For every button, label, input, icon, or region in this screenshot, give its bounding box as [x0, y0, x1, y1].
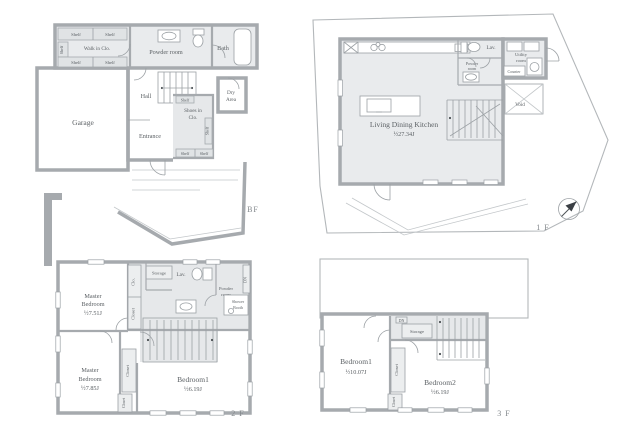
utility-room-label: Utility	[515, 52, 528, 57]
cabinet-icon	[507, 42, 522, 51]
bath-label: Bath	[217, 45, 230, 52]
window	[458, 408, 472, 412]
floor-label-2f: 2 F	[231, 409, 244, 418]
entrance-label: Entrance	[139, 133, 161, 140]
door-arc	[134, 68, 146, 80]
window	[452, 180, 467, 185]
dry-area-label: Area	[226, 97, 237, 103]
toilet-icon	[192, 268, 202, 280]
window	[210, 411, 224, 415]
dn-label: DN	[243, 277, 248, 283]
bedroom2-area: ½6.19J	[431, 389, 449, 396]
bedroom1-area: ½10.07J	[346, 369, 368, 376]
floor-plan-drawing: Garage Shelf Shelf Shelf Shelf Shelf Wal…	[0, 0, 640, 427]
hall-label: Hall	[141, 93, 152, 100]
toilet-icon	[468, 42, 480, 51]
master-bedroom-area: ½7.85J	[81, 385, 99, 392]
floor-label-1f: 1 F	[536, 223, 549, 232]
shelf-box	[58, 57, 127, 67]
stairs-arrow-dot	[439, 353, 441, 355]
shelf-label: Shelf	[200, 151, 209, 156]
toilet-tank-icon	[461, 42, 467, 53]
stairs-arrow-dot	[211, 339, 213, 341]
shoes-closet-label: Shoes in	[184, 108, 202, 114]
door-arc	[546, 48, 559, 61]
floor-1f: Living Dining Kitchen ½27.34J Lav. Powde…	[313, 14, 608, 235]
shelf-label: Shelf	[181, 98, 190, 103]
window	[338, 80, 343, 96]
storage-label: Storage	[410, 329, 424, 334]
stairs-arrow-dot	[439, 321, 441, 323]
shelf-label: Shelf	[105, 60, 115, 65]
walk-in-closet-label: Walk in Clo.	[84, 46, 110, 52]
powder-room-label: Powder room	[149, 49, 183, 56]
bedroom1-area: ½6.19J	[184, 386, 202, 393]
master-bedroom-label: Bedroom	[78, 376, 101, 383]
shelf-label: Shelf	[59, 45, 64, 54]
bathtub-icon	[234, 29, 251, 65]
void-label: Void	[515, 102, 525, 108]
master-bedroom-area: ½7.51J	[84, 310, 102, 317]
ldk-area-label: ½27.34J	[394, 131, 416, 138]
storage-label: Storage	[152, 271, 166, 276]
powder-room-label: Powder	[219, 286, 234, 291]
shelf-label: Shelf	[71, 32, 81, 37]
window	[484, 180, 498, 185]
floor-label-bf: BF	[247, 205, 259, 214]
window	[88, 260, 104, 264]
floor-bf: Garage Shelf Shelf Shelf Shelf Shelf Wal…	[37, 25, 259, 266]
floor-3f: DN Storage Closet Closet Bedroom1 ½10.07…	[320, 259, 528, 418]
monitor-icon	[367, 99, 391, 112]
ground-step-lines	[346, 198, 528, 235]
garage-label: Garage	[72, 118, 94, 127]
window	[423, 180, 438, 185]
bedroom1-label: Bedroom1	[177, 375, 209, 384]
roof-outline	[320, 259, 528, 318]
window	[150, 411, 166, 415]
toilet-tank-icon	[193, 29, 204, 35]
closet-label: Closet	[391, 396, 396, 407]
dn-label: DN	[399, 318, 405, 323]
toilet-icon	[193, 35, 203, 47]
window	[183, 260, 197, 264]
window	[56, 292, 60, 308]
master-bedroom-label: Bedroom	[81, 301, 104, 308]
sink-icon	[176, 300, 196, 313]
window	[56, 383, 60, 397]
stairs-arrow-dot	[147, 339, 149, 341]
terrace-door-arc	[374, 184, 390, 200]
compass-icon	[559, 199, 580, 220]
master-bedroom-label: Master	[81, 367, 98, 374]
dry-area-label: Dry	[227, 90, 235, 96]
window	[180, 411, 196, 415]
shelf-box	[58, 28, 127, 40]
retaining-wall	[44, 198, 52, 266]
entry-door-arc	[150, 160, 165, 175]
shelf-label: Shelf	[71, 60, 81, 65]
window	[320, 330, 324, 346]
floor-plan-canvas: Garage Shelf Shelf Shelf Shelf Shelf Wal…	[0, 0, 640, 427]
bedroom2-label: Bedroom2	[424, 378, 456, 387]
utility-room-label: room	[516, 58, 526, 63]
window	[248, 382, 252, 396]
window	[350, 408, 366, 412]
bf-hall-walls	[128, 68, 173, 160]
window	[56, 336, 60, 352]
floor-label-3f: 3 F	[497, 409, 510, 418]
closet-label: Closet	[125, 364, 130, 376]
closet-label: Closet	[121, 397, 126, 408]
shelf-label: Shelf	[105, 32, 115, 37]
window	[338, 130, 343, 146]
ldk-label: Living Dining Kitchen	[370, 120, 439, 129]
window	[398, 408, 412, 412]
window	[485, 368, 489, 384]
shoes-closet-label: Clo.	[189, 115, 198, 121]
washer-icon	[527, 58, 542, 75]
closet-label: Closet	[131, 307, 136, 319]
shelf-label: Shelf	[181, 151, 190, 156]
master-bedroom-label: Master	[84, 293, 101, 300]
window	[320, 372, 324, 388]
lav-label: Lav.	[176, 272, 185, 278]
floor-2f: Clo. Closet Storage Lav. Powder room Sho…	[56, 260, 252, 418]
lav-label: Lav.	[486, 45, 495, 51]
bedroom1-label: Bedroom1	[340, 357, 372, 366]
counter-label: Counter	[508, 69, 522, 74]
shower-booth-label: Shower	[232, 299, 245, 304]
window	[428, 408, 444, 412]
kitchen-counter	[344, 42, 470, 53]
window	[206, 260, 220, 264]
shelf-label: Shelf	[205, 126, 210, 135]
retaining-wall	[118, 162, 245, 244]
shower-booth-label: Booth	[233, 305, 243, 310]
window	[248, 340, 252, 354]
cabinet-icon	[524, 42, 539, 51]
toilet-tank-icon	[203, 268, 212, 280]
closet-label: Closet	[394, 363, 399, 375]
clo-label: Clo.	[131, 278, 136, 286]
stairs-arrow-dot	[449, 117, 451, 119]
compass-needle-head	[566, 202, 577, 212]
ground-step-lines	[114, 170, 241, 239]
